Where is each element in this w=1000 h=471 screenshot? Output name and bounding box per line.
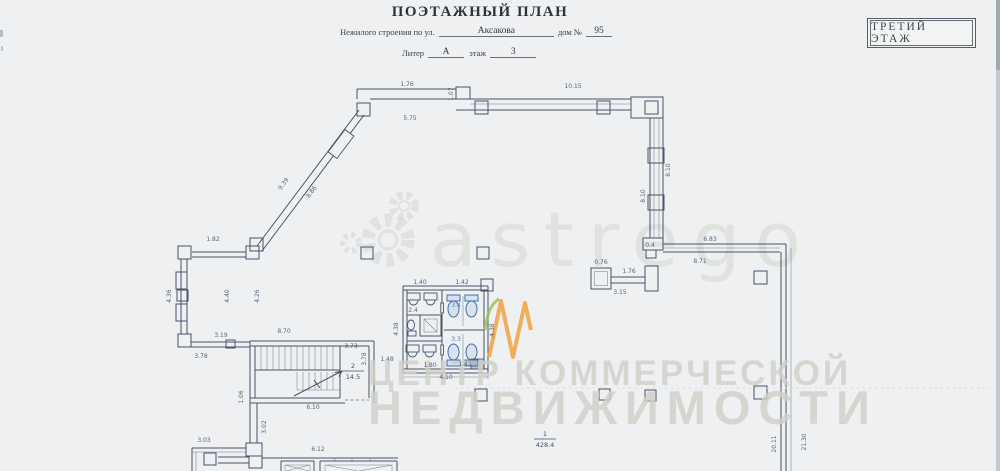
- staircase: [250, 341, 374, 403]
- dimension-label: 3.02: [261, 420, 268, 434]
- dimension-label: 5.75: [403, 115, 417, 122]
- dimension-label: 6.12: [311, 446, 325, 453]
- dimension-label: 1.42: [458, 361, 472, 368]
- dimension-label: 8.70: [277, 328, 291, 335]
- dimension-label: 1.82: [206, 236, 220, 243]
- room-number: 1: [543, 430, 547, 438]
- dimension-label: 1.42: [455, 279, 469, 286]
- dimension-label: 4.38: [393, 322, 400, 336]
- sink-icons: [406, 293, 437, 357]
- scanned-floor-plan-page: ПОЭТАЖНЫЙ ПЛАН Нежилого строения по ул. …: [0, 0, 1000, 471]
- dimension-label: 8.10: [665, 163, 672, 177]
- dimension-label: 3.78: [361, 352, 368, 366]
- elevator-shafts: [281, 461, 397, 471]
- dimension-label: 6.10: [306, 404, 320, 411]
- dimension-label: 3.15: [613, 289, 627, 296]
- dimension-label: 3.78: [194, 353, 208, 360]
- dimension-label: 2.4: [408, 307, 418, 314]
- room-area: 14.5: [346, 373, 360, 381]
- dimension-label: 10.15: [564, 83, 581, 90]
- dimension-label: 1.06: [238, 390, 245, 404]
- dimension-label: 3.3: [451, 336, 461, 343]
- dimension-label: 1.76: [400, 81, 414, 88]
- dimension-label: 9.39: [277, 177, 291, 192]
- dimension-label: 1.76: [622, 268, 636, 275]
- dimension-label: 0.76: [594, 259, 608, 266]
- gear-hole: [399, 201, 409, 211]
- dimension-label: 4.26: [254, 289, 261, 303]
- watermark-line2: НЕДВИЖИМОСТИ: [368, 381, 878, 434]
- dimension-label: 1.40: [413, 279, 427, 286]
- dimension-label: 20.11: [771, 435, 778, 452]
- dimension-label: 4.38: [489, 323, 496, 337]
- dimension-label: 3.73: [344, 343, 358, 350]
- dimension-label: 4.10: [439, 374, 453, 381]
- dimension-label: 3.03: [197, 437, 211, 444]
- gear-icon: [393, 195, 415, 217]
- dimension-label: 4.40: [224, 289, 231, 303]
- dimension-label: 8.71: [693, 258, 707, 265]
- dimension-label: 3.4: [451, 302, 461, 309]
- gear-icon: [343, 235, 359, 251]
- watermark-gears: [343, 195, 415, 260]
- dimension-label: 21.30: [801, 433, 808, 450]
- dimension-label: 1.07: [448, 87, 455, 101]
- dimension-label: 4.36: [166, 289, 173, 303]
- dimension-label: 1.80: [423, 362, 437, 369]
- dimension-label: 6.83: [703, 236, 717, 243]
- room-area: 428.4: [536, 441, 555, 449]
- dimension-label: 0.4: [645, 242, 655, 249]
- dimension-label: 1.48: [380, 356, 394, 363]
- dimension-label: 3.19: [214, 332, 228, 339]
- dimension-label: 8.10: [640, 189, 647, 203]
- gear-icon: [368, 220, 408, 260]
- gear-hole: [379, 231, 397, 249]
- toilet-icon: [408, 320, 415, 330]
- room-number: 2: [351, 362, 355, 370]
- dimension-label: 8.86: [305, 185, 319, 200]
- floor-plan-svg: astrego: [0, 0, 1000, 471]
- stair-direction-arrow: [294, 371, 342, 396]
